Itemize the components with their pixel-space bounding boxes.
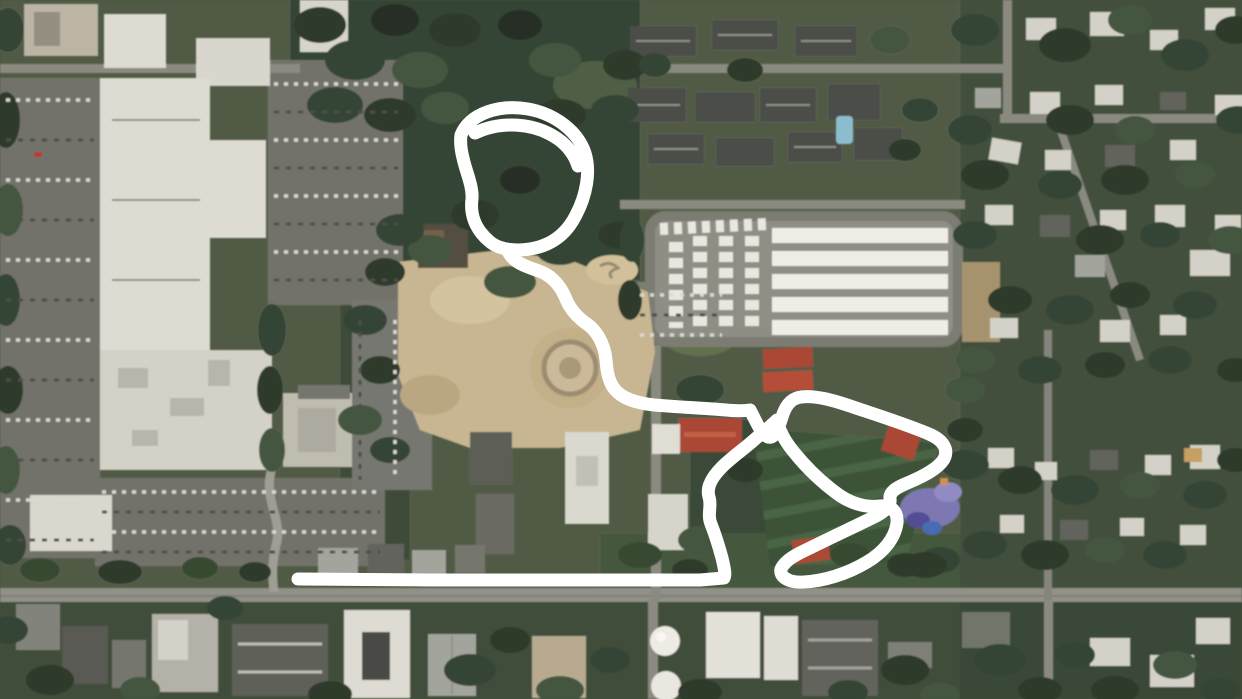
aerial-photo bbox=[0, 0, 1242, 699]
scenery bbox=[0, 0, 1242, 699]
haze-overlay bbox=[0, 0, 1242, 699]
